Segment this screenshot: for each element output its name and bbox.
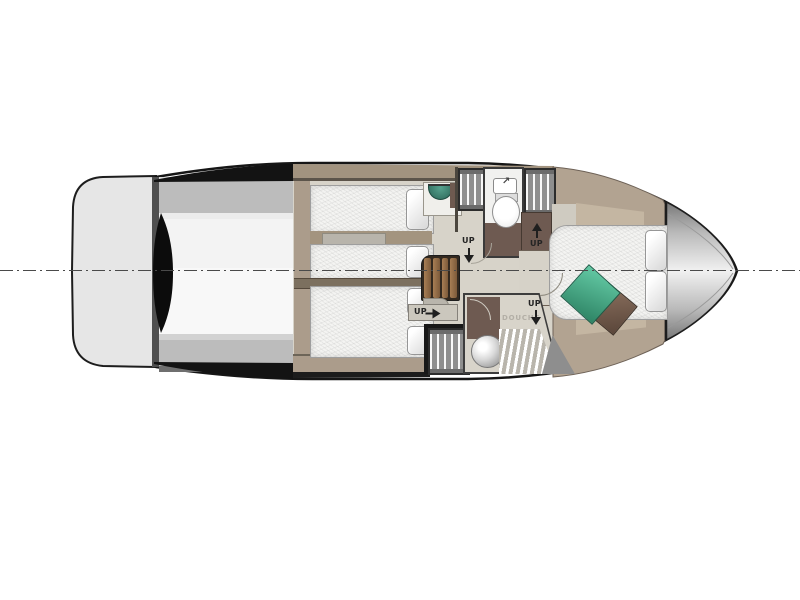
down-arrow-twin-cabin [464, 248, 474, 263]
toilet-room-floor [485, 223, 522, 256]
right-arrow-double-cabin [426, 309, 441, 319]
companionway-stairs [421, 255, 460, 301]
up-label-master-bottom: UP [528, 300, 541, 308]
master-pillow-1 [645, 230, 667, 271]
master-pillow-2 [645, 271, 667, 312]
up-label-master-top: UP [530, 240, 543, 248]
stair-tread [450, 258, 457, 298]
toilet-bowl [492, 196, 520, 228]
up-label-twin-cabin: UP [462, 237, 475, 245]
stair-tread [433, 258, 440, 298]
bow-deck [666, 202, 736, 340]
up-arrow-master-top [532, 223, 542, 238]
stair-tread [424, 258, 431, 298]
hull-centerline [0, 270, 800, 271]
floor-plan-canvas: ↗ DOUCHE UP UP UP UP [0, 0, 800, 600]
stair-tread [442, 258, 449, 298]
faucet-arrow-icon: ↗ [502, 177, 510, 187]
cockpit-deck [153, 164, 293, 379]
swim-platform [72, 176, 156, 367]
down-arrow-master-bottom [531, 310, 541, 325]
